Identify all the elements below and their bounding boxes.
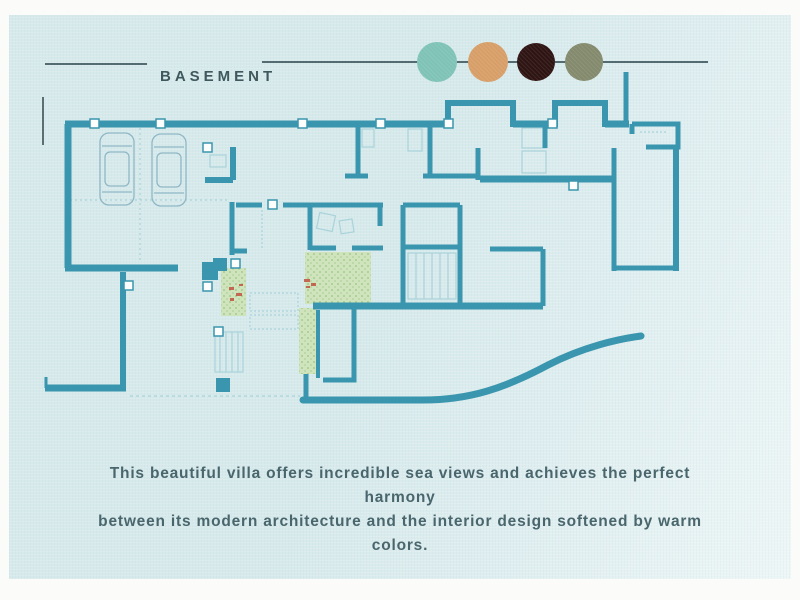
stairs <box>215 332 243 372</box>
slide-frame: BASEMENT This beautiful villa offers inc… <box>0 0 800 600</box>
walls <box>45 72 678 400</box>
car-outline-2 <box>152 134 186 206</box>
basement-floor-plan <box>0 0 800 600</box>
car-outline-1 <box>100 133 134 205</box>
